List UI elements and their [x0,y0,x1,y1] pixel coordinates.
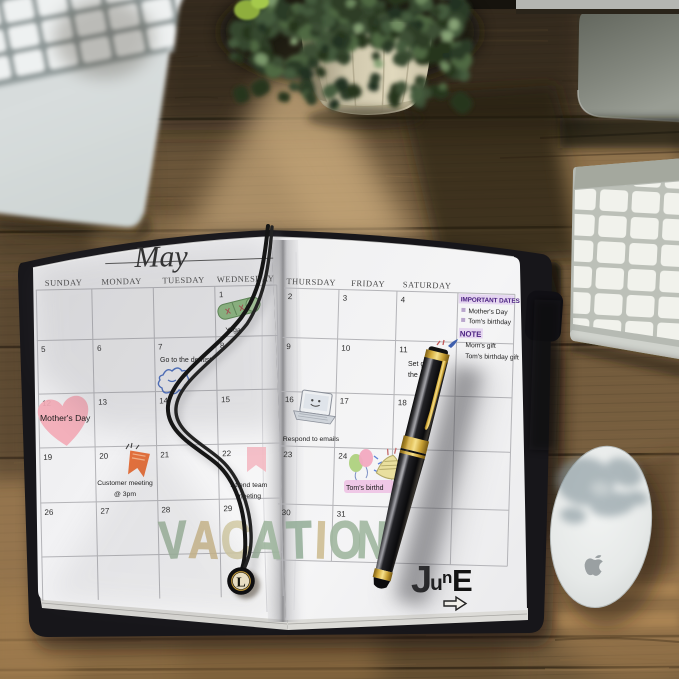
svg-text:11: 11 [399,345,408,354]
svg-text:24: 24 [338,452,348,461]
svg-text:Tom's birthday: Tom's birthday [468,318,512,326]
svg-text:9: 9 [286,342,291,351]
svg-text:20: 20 [99,452,109,461]
svg-text:L: L [236,576,245,591]
svg-text:26: 26 [44,508,54,517]
svg-text:2: 2 [288,292,293,301]
svg-text:Respond to emails: Respond to emails [283,436,340,443]
svg-text:23: 23 [283,450,293,459]
svg-text:19: 19 [43,453,53,462]
svg-text:22: 22 [222,449,232,458]
svg-text:Tom's birthd: Tom's birthd [346,485,384,492]
svg-text:10: 10 [341,344,351,353]
svg-text:NOTE: NOTE [460,329,482,339]
svg-text:17: 17 [340,397,350,406]
svg-text:16: 16 [285,395,295,404]
svg-text:FRIDAY: FRIDAY [351,278,385,289]
svg-text:18: 18 [398,398,408,407]
svg-text:Mother's Day: Mother's Day [468,308,508,316]
svg-text:the: the [408,372,418,379]
svg-text:4: 4 [401,295,406,304]
svg-text:Mom's gift: Mom's gift [465,342,496,350]
svg-text:I: I [314,511,328,570]
svg-text:T: T [285,511,313,571]
svg-text:3: 3 [343,294,348,303]
svg-text:E: E [452,563,473,598]
svg-text:SATURDAY: SATURDAY [403,279,452,290]
svg-text:Mother's Day: Mother's Day [40,413,91,423]
svg-text:THURSDAY: THURSDAY [286,276,336,287]
